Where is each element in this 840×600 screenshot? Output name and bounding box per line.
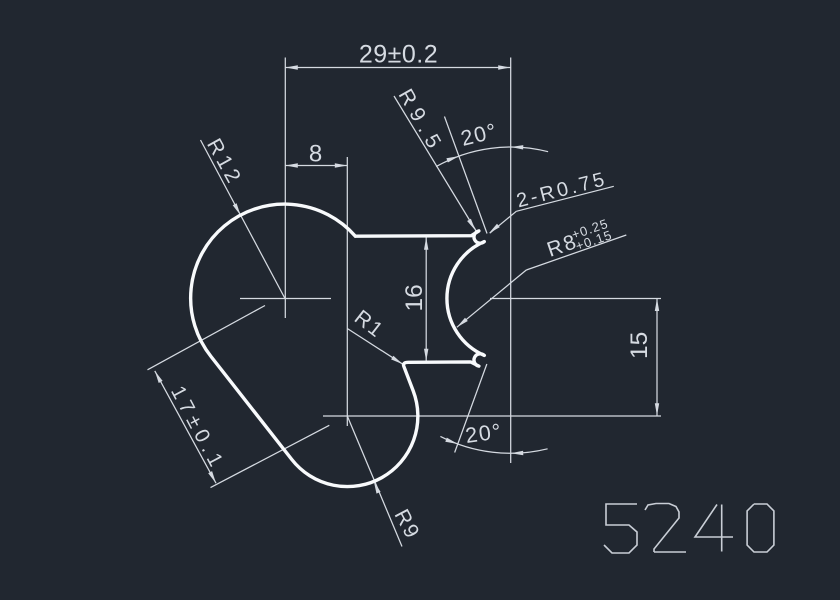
svg-text:8: 8 (309, 141, 322, 168)
svg-text:20°: 20° (464, 419, 504, 448)
svg-text:16: 16 (401, 284, 428, 311)
svg-text:15: 15 (626, 332, 653, 359)
svg-text:29±0.2: 29±0.2 (359, 41, 438, 69)
